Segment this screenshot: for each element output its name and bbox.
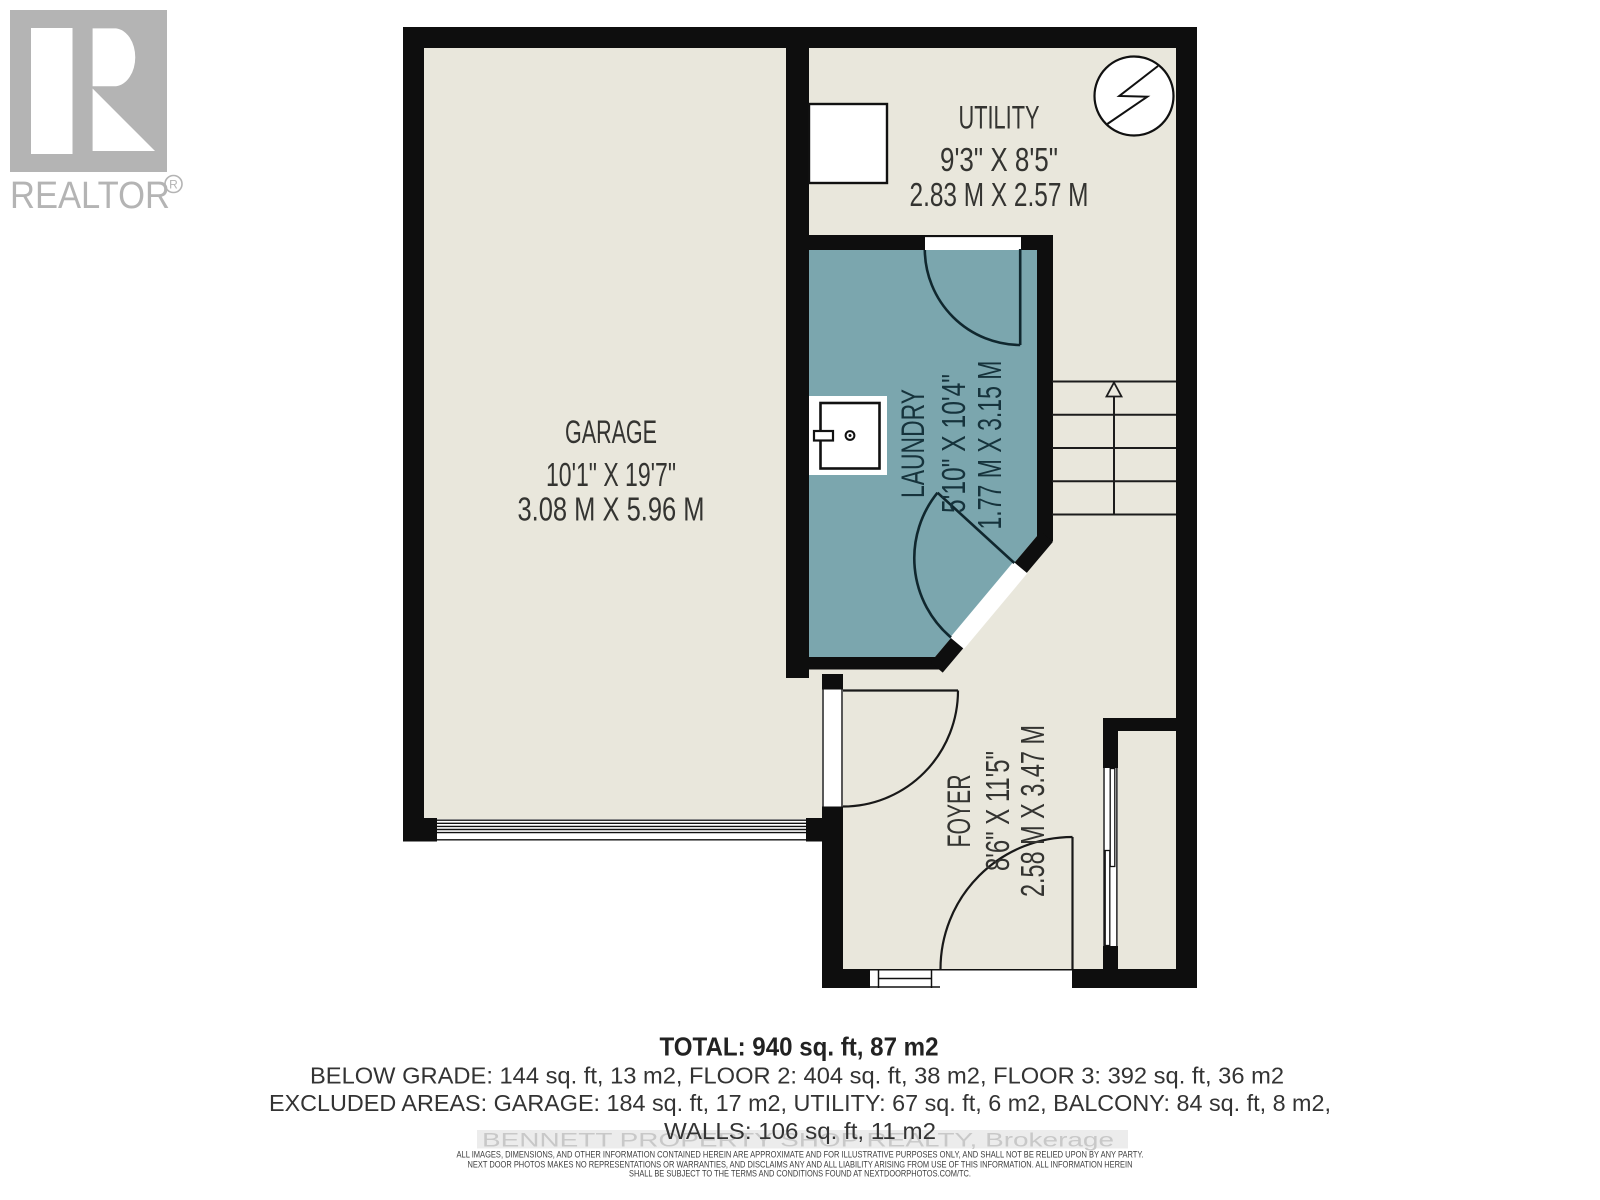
svg-text:SHALL BE SUBJECT TO THE TERMS: SHALL BE SUBJECT TO THE TERMS AND CONDIT… bbox=[629, 1169, 971, 1179]
svg-text:10'1" X 19'7": 10'1" X 19'7" bbox=[546, 456, 676, 493]
svg-text:EXCLUDED AREAS: GARAGE: 184 sq: EXCLUDED AREAS: GARAGE: 184 sq. ft, 17 m… bbox=[269, 1090, 1331, 1116]
svg-text:1.77 M X 3.15 M: 1.77 M X 3.15 M bbox=[971, 361, 1008, 530]
svg-text:2.83 M X 2.57 M: 2.83 M X 2.57 M bbox=[910, 176, 1089, 213]
svg-text:ALL IMAGES, DIMENSIONS, AND OT: ALL IMAGES, DIMENSIONS, AND OTHER INFORM… bbox=[457, 1150, 1144, 1160]
svg-text:R: R bbox=[169, 178, 178, 192]
svg-text:UTILITY: UTILITY bbox=[959, 100, 1040, 136]
svg-text:FOYER: FOYER bbox=[941, 775, 977, 848]
svg-text:LAUNDRY: LAUNDRY bbox=[895, 389, 931, 498]
svg-text:TOTAL: 940 sq. ft, 87 m2: TOTAL: 940 sq. ft, 87 m2 bbox=[660, 1032, 939, 1062]
svg-text:3.08 M X 5.96 M: 3.08 M X 5.96 M bbox=[518, 491, 705, 528]
svg-text:GARAGE: GARAGE bbox=[565, 414, 657, 450]
svg-text:BELOW GRADE: 144 sq. ft, 13 m2: BELOW GRADE: 144 sq. ft, 13 m2, FLOOR 2:… bbox=[310, 1063, 1284, 1089]
svg-text:9'3" X 8'5": 9'3" X 8'5" bbox=[940, 141, 1058, 178]
svg-text:5'10" X 10'4": 5'10" X 10'4" bbox=[935, 374, 972, 513]
svg-text:8'6" X 11'5": 8'6" X 11'5" bbox=[979, 751, 1016, 871]
svg-text:2.58 M X 3.47 M: 2.58 M X 3.47 M bbox=[1014, 725, 1051, 897]
svg-text:REALTOR: REALTOR bbox=[10, 175, 170, 217]
svg-text:WALLS: 106 sq. ft, 11 m2: WALLS: 106 sq. ft, 11 m2 bbox=[664, 1118, 936, 1144]
